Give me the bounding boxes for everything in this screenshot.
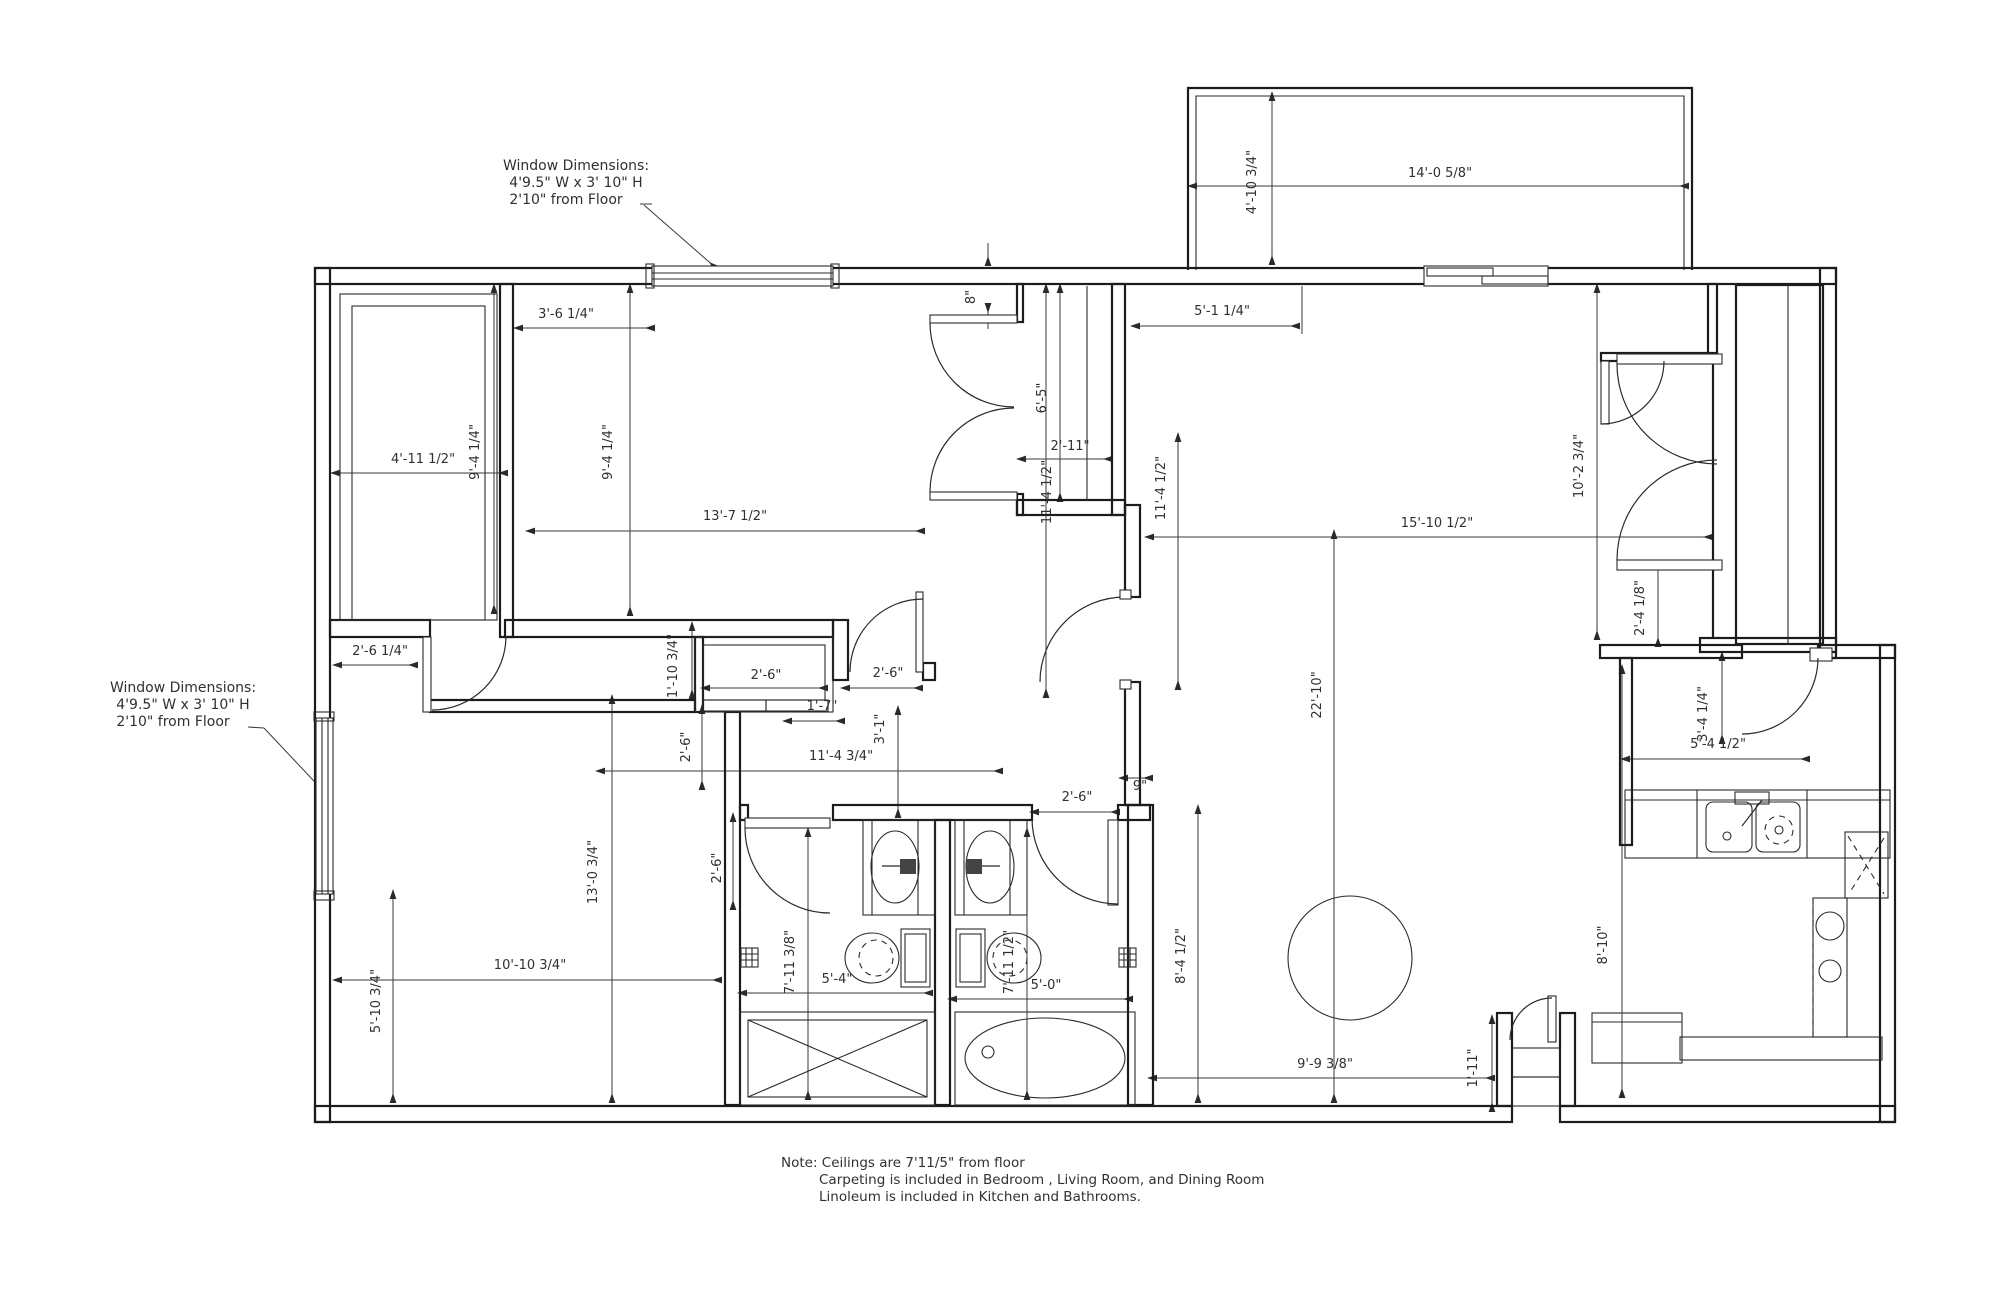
wall-bottom-west	[315, 1106, 1512, 1122]
dim-label-17: 1'-10 3/4"	[666, 634, 681, 698]
wall-door-stub	[923, 663, 935, 680]
dim-label-13: 15'-10 1/2"	[1401, 516, 1473, 531]
interior-walls	[330, 284, 1836, 1106]
bedroom2-window	[314, 712, 334, 900]
dim-label-28: 9"	[1133, 779, 1147, 794]
note-line-0: Note: Ceilings are 7'11/5" from floor	[781, 1155, 1025, 1171]
dim-label-12: 13'-7 1/2"	[703, 509, 767, 524]
bedroom1-door	[916, 592, 923, 672]
dim-label-18: 2'-6"	[751, 668, 782, 683]
master-closet-door-bottom	[1617, 560, 1722, 570]
wall-left	[315, 268, 330, 1122]
dim-label-31: 8'-10"	[1596, 925, 1611, 964]
wall-bath-north	[833, 805, 1032, 820]
dimension-labels: 4'-10 3/4"14'-0 5/8"3'-6 1/4"8"5'-1 1/4"…	[110, 150, 1746, 1205]
kitchen-fixtures	[1592, 790, 1890, 1063]
dim-label-30: 13'-0 3/4"	[586, 840, 601, 904]
callout-left-line-1: 4'9.5" W x 3' 10" H	[116, 697, 249, 713]
dim-label-7: 9'-4 1/4"	[468, 424, 483, 480]
callout-top-line-2: 2'10" from Floor	[509, 192, 623, 208]
dim-label-0: 4'-10 3/4"	[1245, 150, 1260, 214]
dim-label-33: 7'-11 3/8"	[783, 930, 798, 994]
wall-bath-mid	[935, 820, 950, 1105]
hall-door-arc	[1040, 597, 1125, 682]
bathroom2-door	[1108, 820, 1118, 905]
dim-label-10: 11'-4 1/2"	[1040, 460, 1055, 524]
kitchen-door-jamb	[1810, 648, 1832, 661]
dim-label-11: 11'-4 1/2"	[1154, 456, 1169, 520]
dim-label-23: 11'-4 3/4"	[809, 749, 873, 764]
stove-range	[1813, 898, 1847, 1037]
callout-left-line-2: 2'10" from Floor	[116, 714, 230, 730]
living-dining	[1288, 896, 1560, 1106]
dim-label-3: 8"	[964, 290, 979, 304]
kitchen-counter-top	[1625, 790, 1890, 858]
dim-label-25: 3'-4 1/4"	[1696, 686, 1711, 742]
kitchen-sink	[1706, 792, 1800, 852]
garbage-disposal	[1765, 816, 1793, 844]
dim-label-8: 9'-4 1/4"	[601, 424, 616, 480]
dim-label-6: 2'-11"	[1050, 439, 1089, 454]
dim-label-14: 10'-2 3/4"	[1572, 434, 1587, 498]
balcony-slider-door	[1424, 266, 1548, 286]
entry-step-2	[1512, 1077, 1560, 1106]
dim-label-16: 2'-6 1/4"	[352, 644, 408, 659]
dim-label-24: 2'-6"	[679, 732, 694, 763]
dim-label-40: 9'-9 3/8"	[1297, 1057, 1353, 1072]
callout-top-line-1: 4'9.5" W x 3' 10" H	[509, 175, 642, 191]
switch-box-1	[741, 948, 758, 967]
dim-label-29: 2'-6"	[710, 853, 725, 884]
wall-closetstrip-bottom	[1017, 500, 1125, 515]
dim-label-1: 14'-0 5/8"	[1408, 166, 1472, 181]
floor-plan-sheet: 4'-10 3/4"14'-0 5/8"3'-6 1/4"8"5'-1 1/4"…	[0, 0, 1997, 1293]
wall-jog	[833, 620, 848, 680]
wall-closetstrip-face-top	[1017, 284, 1023, 322]
dim-label-36: 5'-4"	[822, 972, 853, 987]
wall-bottom-east	[1560, 1106, 1895, 1122]
shower	[740, 1012, 935, 1105]
kitchen-island	[1592, 1013, 1682, 1063]
dining-table	[1288, 896, 1412, 1020]
dim-label-26: 5'-4 1/2"	[1690, 737, 1746, 752]
wall-hall-east-a	[1125, 505, 1140, 597]
master-closet-door-top	[1617, 354, 1722, 364]
wall-bedroom2-north	[430, 700, 695, 712]
wall-master-west-top	[1708, 284, 1717, 360]
bed1-closet-door-top	[930, 315, 1017, 323]
vanity-sink-2	[955, 820, 1027, 915]
dim-label-39: 1'-11"	[1466, 1048, 1481, 1087]
dim-label-4: 5'-1 1/4"	[1194, 304, 1250, 319]
wall-closetstrip-east	[1112, 284, 1125, 515]
bathroom1-door	[745, 818, 830, 828]
dim-label-32: 8'-4 1/2"	[1174, 928, 1189, 984]
dim-label-34: 7'-11 1/2"	[1002, 930, 1017, 994]
dim-label-21: 3'-1"	[873, 714, 888, 745]
wall-bed-bottom-a	[330, 620, 430, 637]
wall-entry-jamb-right	[1560, 1013, 1575, 1106]
toilet-1	[845, 929, 930, 987]
bedroom1-window	[646, 264, 839, 288]
dim-label-22: 22'-10"	[1310, 671, 1325, 718]
callout-top-line-0: Window Dimensions:	[503, 158, 649, 174]
dimension-lines	[248, 100, 1809, 1111]
master-closet	[1736, 285, 1823, 644]
wall-hallcloset-west	[695, 637, 703, 712]
dim-label-37: 5'-0"	[1031, 978, 1062, 993]
dim-label-9: 4'-11 1/2"	[391, 452, 455, 467]
callout-left-line-0: Window Dimensions:	[110, 680, 256, 696]
wall-bath-east	[1128, 805, 1153, 1105]
refrigerator	[1845, 832, 1888, 898]
wall-closet-bedroom1	[500, 284, 513, 637]
dim-label-38: 5'-10 3/4"	[369, 969, 384, 1033]
dim-label-20: 1'-7"	[807, 699, 838, 714]
entry-step-1	[1512, 1048, 1560, 1077]
note-line-1: Carpeting is included in Bedroom , Livin…	[819, 1172, 1264, 1188]
master-door	[1601, 361, 1609, 424]
bed1-closet-door-bottom	[930, 492, 1017, 500]
dim-label-27: 2'-6"	[1062, 790, 1093, 805]
bathtub	[955, 1012, 1135, 1105]
wall-closetstrip-face-bottom	[1017, 494, 1023, 515]
wall-entry-jamb-left	[1497, 1013, 1512, 1106]
vanity-sink-1	[863, 820, 935, 915]
hall-closet-door-left	[703, 700, 766, 711]
dim-label-5: 6'-5"	[1035, 383, 1050, 414]
entry-door	[1548, 996, 1556, 1042]
bathroom-fixtures	[740, 820, 1136, 1105]
kitchen-counter-bottom	[1680, 1037, 1882, 1060]
kitchen-door-arc	[1742, 658, 1818, 734]
dim-label-15: 2'-4 1/8"	[1633, 580, 1648, 636]
wall-top	[315, 268, 1836, 284]
callout-top-leader	[644, 205, 716, 268]
dim-label-35: 10'-10 3/4"	[494, 958, 566, 973]
wall-bath2-jamb	[1118, 805, 1150, 820]
dim-label-19: 2'-6"	[873, 666, 904, 681]
bedroom2-door	[423, 637, 431, 712]
floor-plan-drawing: 4'-10 3/4"14'-0 5/8"3'-6 1/4"8"5'-1 1/4"…	[0, 0, 1997, 1293]
toilet-2	[956, 929, 1041, 987]
note-line-2: Linoleum is included in Kitchen and Bath…	[819, 1189, 1141, 1205]
dim-label-2: 3'-6 1/4"	[538, 307, 594, 322]
